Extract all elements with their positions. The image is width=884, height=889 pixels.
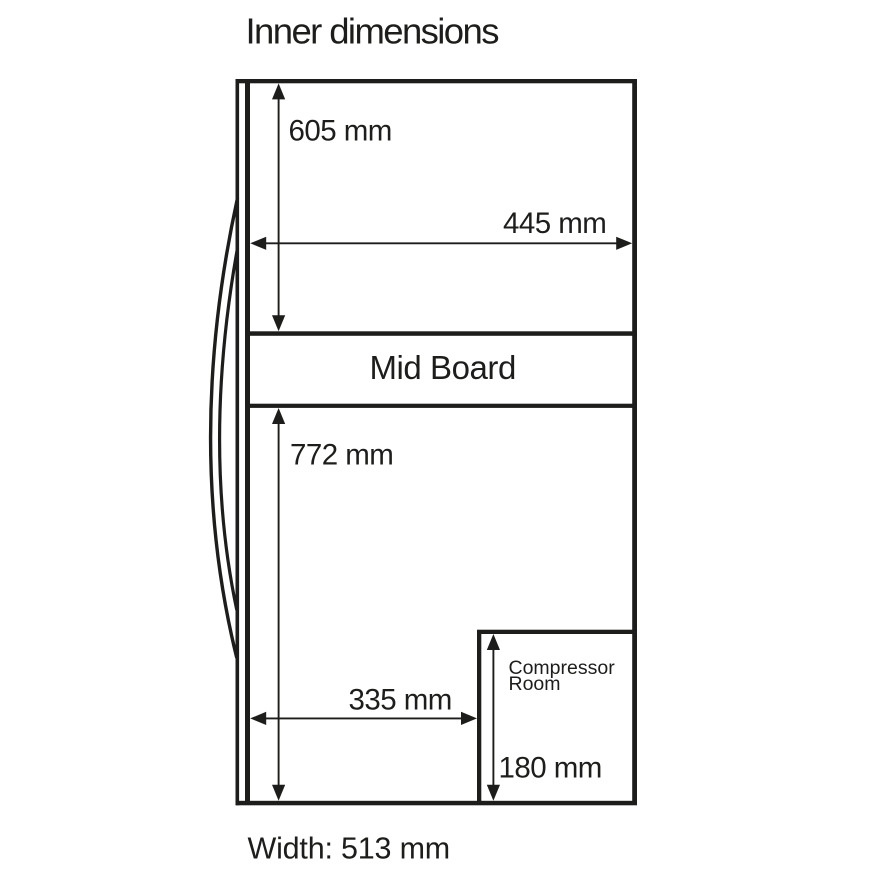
svg-text:Mid Board: Mid Board — [370, 349, 516, 386]
svg-text:180 mm: 180 mm — [499, 752, 602, 785]
svg-text:605 mm: 605 mm — [289, 115, 392, 148]
svg-text:772 mm: 772 mm — [290, 439, 393, 472]
svg-text:Room: Room — [509, 673, 561, 695]
svg-text:Width: 513 mm: Width: 513 mm — [248, 832, 451, 866]
svg-text:335 mm: 335 mm — [349, 684, 452, 717]
svg-text:Inner dimensions: Inner dimensions — [246, 11, 499, 52]
svg-text:445 mm: 445 mm — [503, 207, 606, 240]
